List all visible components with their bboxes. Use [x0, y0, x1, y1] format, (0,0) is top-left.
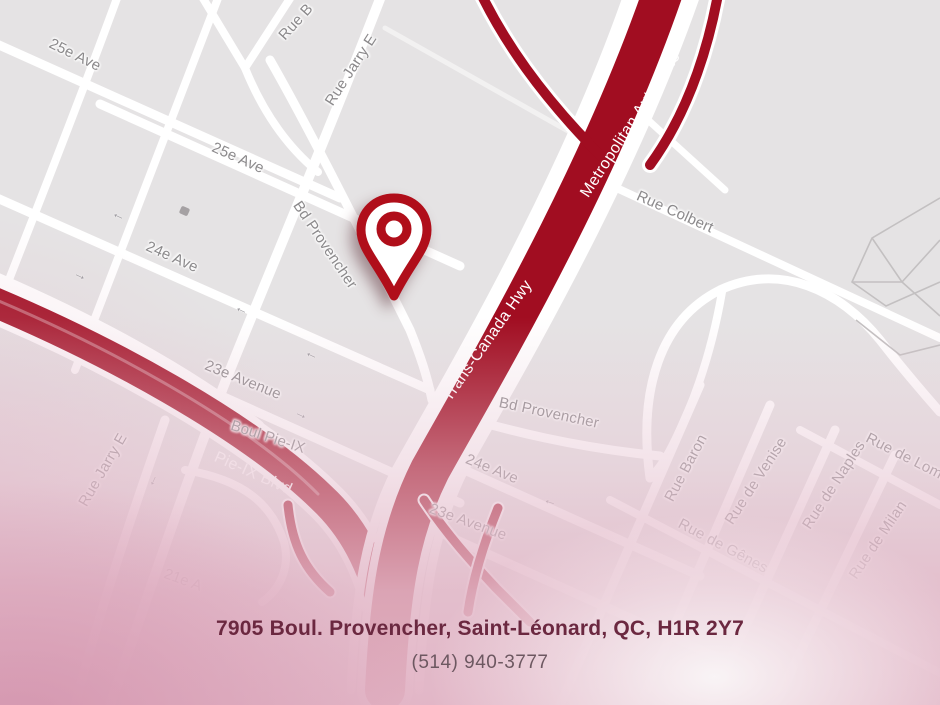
road-faint-diagonal: [385, 28, 575, 135]
address-text: 7905 Boul. Provencher, Saint-Léonard, QC…: [20, 617, 940, 641]
footer: 7905 Boul. Provencher, Saint-Léonard, QC…: [20, 617, 940, 674]
location-pin-icon[interactable]: [355, 192, 433, 304]
map-view[interactable]: 25e Ave 25e Ave 24e Ave 23e Avenue Boul …: [0, 0, 940, 705]
trans-canada-highway: [288, 0, 722, 690]
pie-ix-highway: [0, 285, 386, 618]
phone-text: (514) 940-3777: [20, 652, 940, 674]
